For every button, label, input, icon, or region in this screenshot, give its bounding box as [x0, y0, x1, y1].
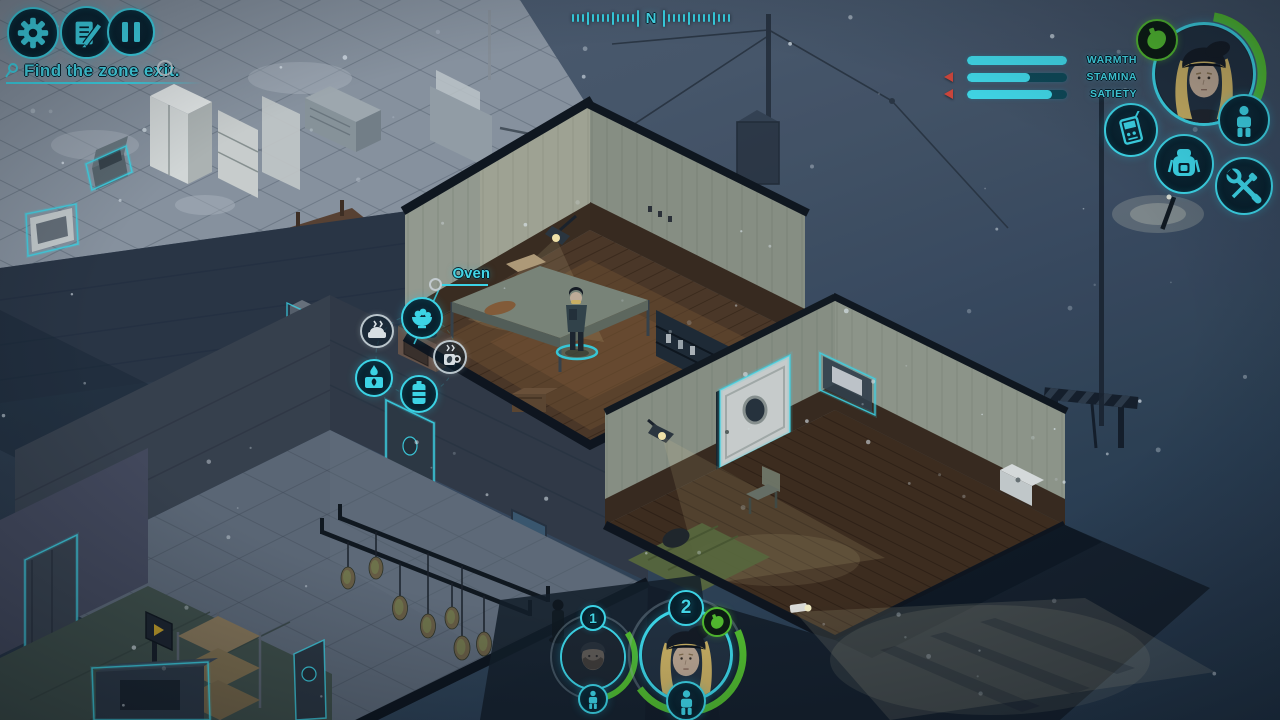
- light-fire-action-button[interactable]: [355, 359, 393, 397]
- person-icon: [1227, 103, 1261, 137]
- radio-button[interactable]: [1104, 103, 1158, 157]
- quest-progress-circle: [157, 60, 173, 76]
- inventory-button[interactable]: [1154, 134, 1214, 194]
- party-member-1-portrait[interactable]: [560, 624, 626, 690]
- party-member-2-number: 2: [668, 590, 704, 626]
- quest-underline: [6, 82, 202, 84]
- pause-icon: [116, 17, 146, 47]
- stat-fill: [967, 56, 1067, 65]
- oven-callout-circle: [429, 278, 442, 291]
- compass-ticks: [663, 10, 731, 27]
- canister-icon: [405, 380, 433, 408]
- quest-text: Find the zone exit.: [24, 61, 180, 81]
- stat-row-warmth: WARMTH: [944, 53, 1137, 67]
- oven-callout-label: Oven: [438, 265, 490, 282]
- cook-action-button[interactable]: [401, 297, 443, 339]
- satiety-status-icon: [1136, 19, 1178, 61]
- hot-drink-action-button[interactable]: [433, 340, 467, 374]
- game-screen: Find the zone exit. N WARMTH STAMINA SAT…: [0, 0, 1280, 720]
- character-button[interactable]: [1218, 94, 1270, 146]
- stat-label: WARMTH: [1075, 54, 1137, 66]
- party-member-1-number: 1: [580, 605, 606, 631]
- stomach-icon: [708, 613, 727, 632]
- search-icon: [4, 62, 20, 80]
- stamina-bar: [967, 73, 1067, 82]
- person-icon: [673, 688, 700, 715]
- fire-icon: [360, 364, 388, 392]
- journal-pencil-icon: [68, 14, 106, 52]
- party-member-1-status-button[interactable]: [578, 684, 608, 714]
- fuel-action-button[interactable]: [400, 375, 438, 413]
- stat-alert: [944, 89, 953, 99]
- stomach-icon: [1143, 26, 1171, 54]
- settings-button[interactable]: [7, 7, 59, 59]
- backpack-icon: [1163, 143, 1205, 185]
- warmth-bar: [967, 56, 1067, 65]
- pause-button[interactable]: [107, 8, 155, 56]
- compass: N: [556, 5, 746, 31]
- gear-icon: [14, 14, 52, 52]
- compass-north-label: N: [646, 11, 657, 26]
- person-icon: [583, 689, 603, 709]
- bearded-man-avatar: [562, 626, 624, 688]
- handheld-radio-icon: [1112, 111, 1150, 149]
- compass-ticks: [572, 10, 640, 27]
- stat-label: SATIETY: [1075, 88, 1137, 100]
- stat-row-stamina: STAMINA: [944, 70, 1137, 84]
- craft-button[interactable]: [1215, 157, 1273, 215]
- storage-container[interactable]: [92, 658, 218, 720]
- steaming-cup-icon: [437, 344, 463, 370]
- game-world: [0, 0, 1280, 720]
- tools-icon: [1224, 166, 1264, 206]
- steaming-tray-icon: [364, 318, 390, 344]
- porthole-door-small[interactable]: [294, 640, 326, 720]
- food-bowl-icon: [407, 303, 437, 333]
- stat-label: STAMINA: [1075, 71, 1137, 83]
- stat-fill: [967, 73, 1030, 82]
- satiety-bar: [967, 90, 1067, 99]
- stat-row-satiety: SATIETY: [944, 87, 1137, 101]
- party-member-2-satiety-icon: [702, 607, 732, 637]
- party-member-2-status-button[interactable]: [666, 681, 706, 720]
- hot-meal-action-button[interactable]: [360, 314, 394, 348]
- stat-fill: [967, 90, 1052, 99]
- stat-alert: [944, 72, 953, 82]
- oven-callout-underline: [440, 284, 488, 286]
- journal-button[interactable]: [60, 6, 113, 59]
